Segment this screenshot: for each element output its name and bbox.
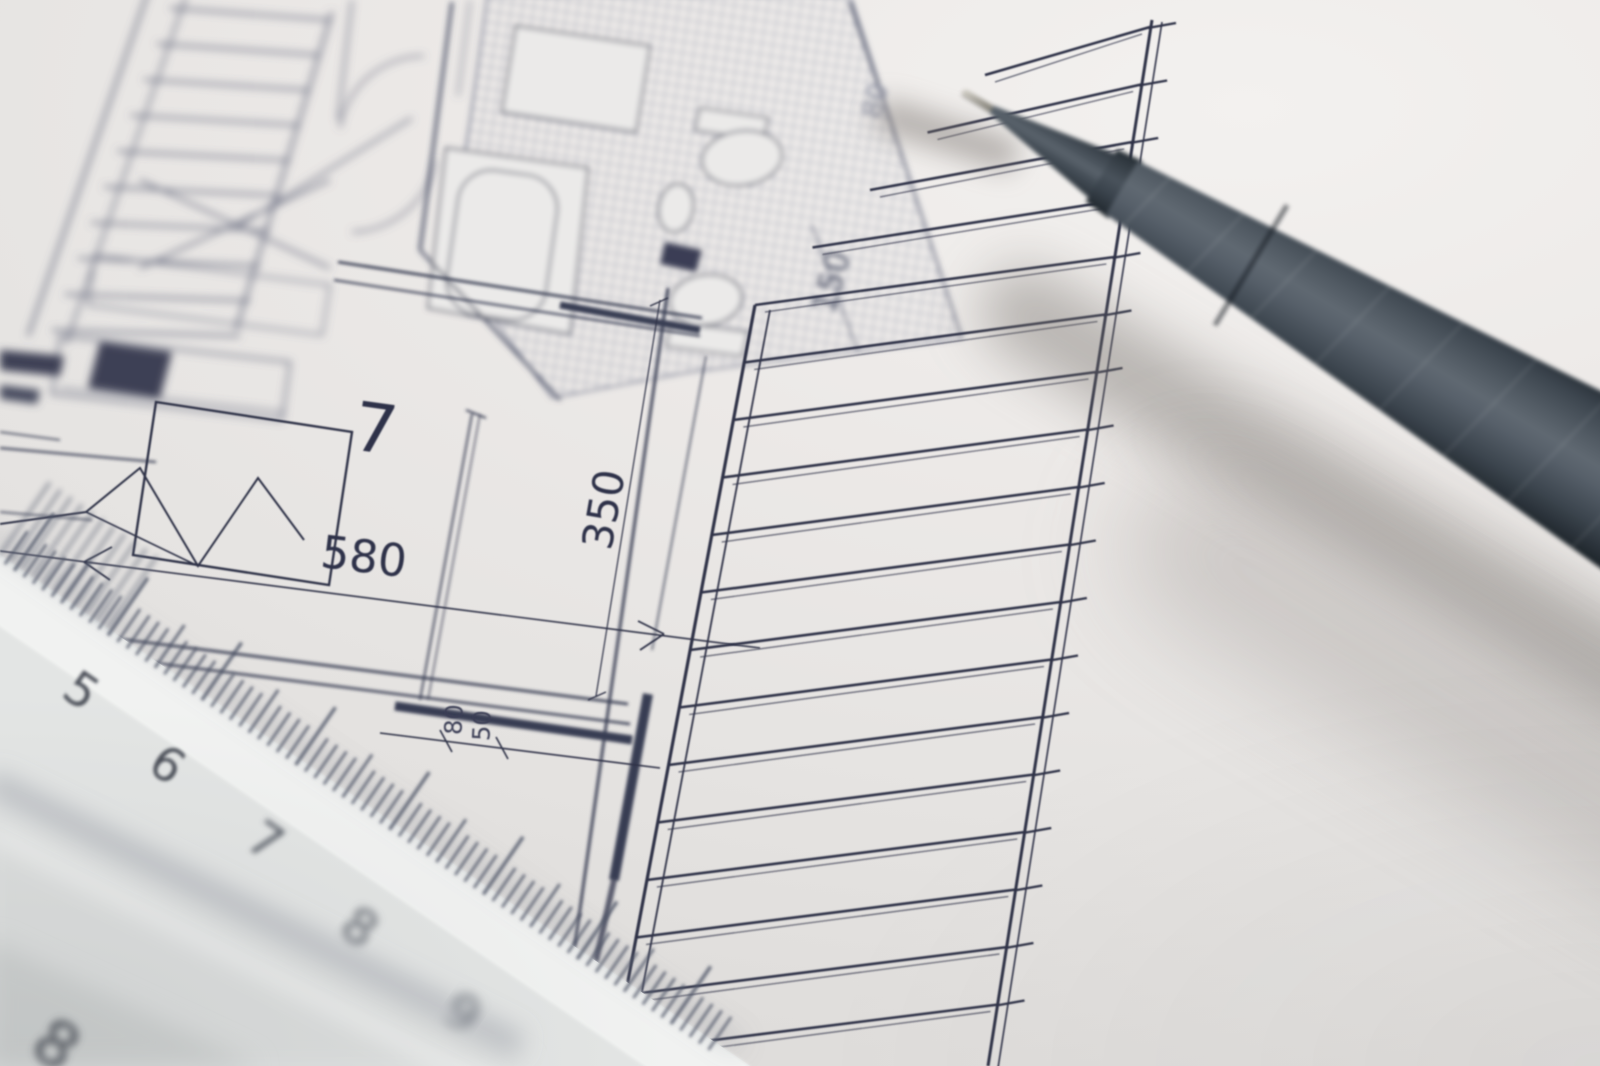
shower-unit xyxy=(502,26,650,132)
staircase xyxy=(0,0,470,420)
wall-thick-band xyxy=(395,706,632,740)
dim-label-50: 50 xyxy=(467,710,497,742)
bed-pillow-zigzag xyxy=(0,468,304,566)
deck-left-edge xyxy=(612,305,755,1066)
door-leaf xyxy=(420,414,472,700)
dim-label-80: 80 xyxy=(439,704,469,736)
bathroom: 150 80 xyxy=(420,0,962,400)
room-number: 7 xyxy=(348,388,402,472)
wall-section-dark xyxy=(88,342,172,398)
photo-floorplan-scene: 150 80 xyxy=(0,0,1600,1066)
dim-label-350: 350 xyxy=(573,466,635,553)
dim-label-580: 580 xyxy=(318,525,410,588)
stair-treads xyxy=(52,8,330,336)
bed xyxy=(133,402,352,585)
